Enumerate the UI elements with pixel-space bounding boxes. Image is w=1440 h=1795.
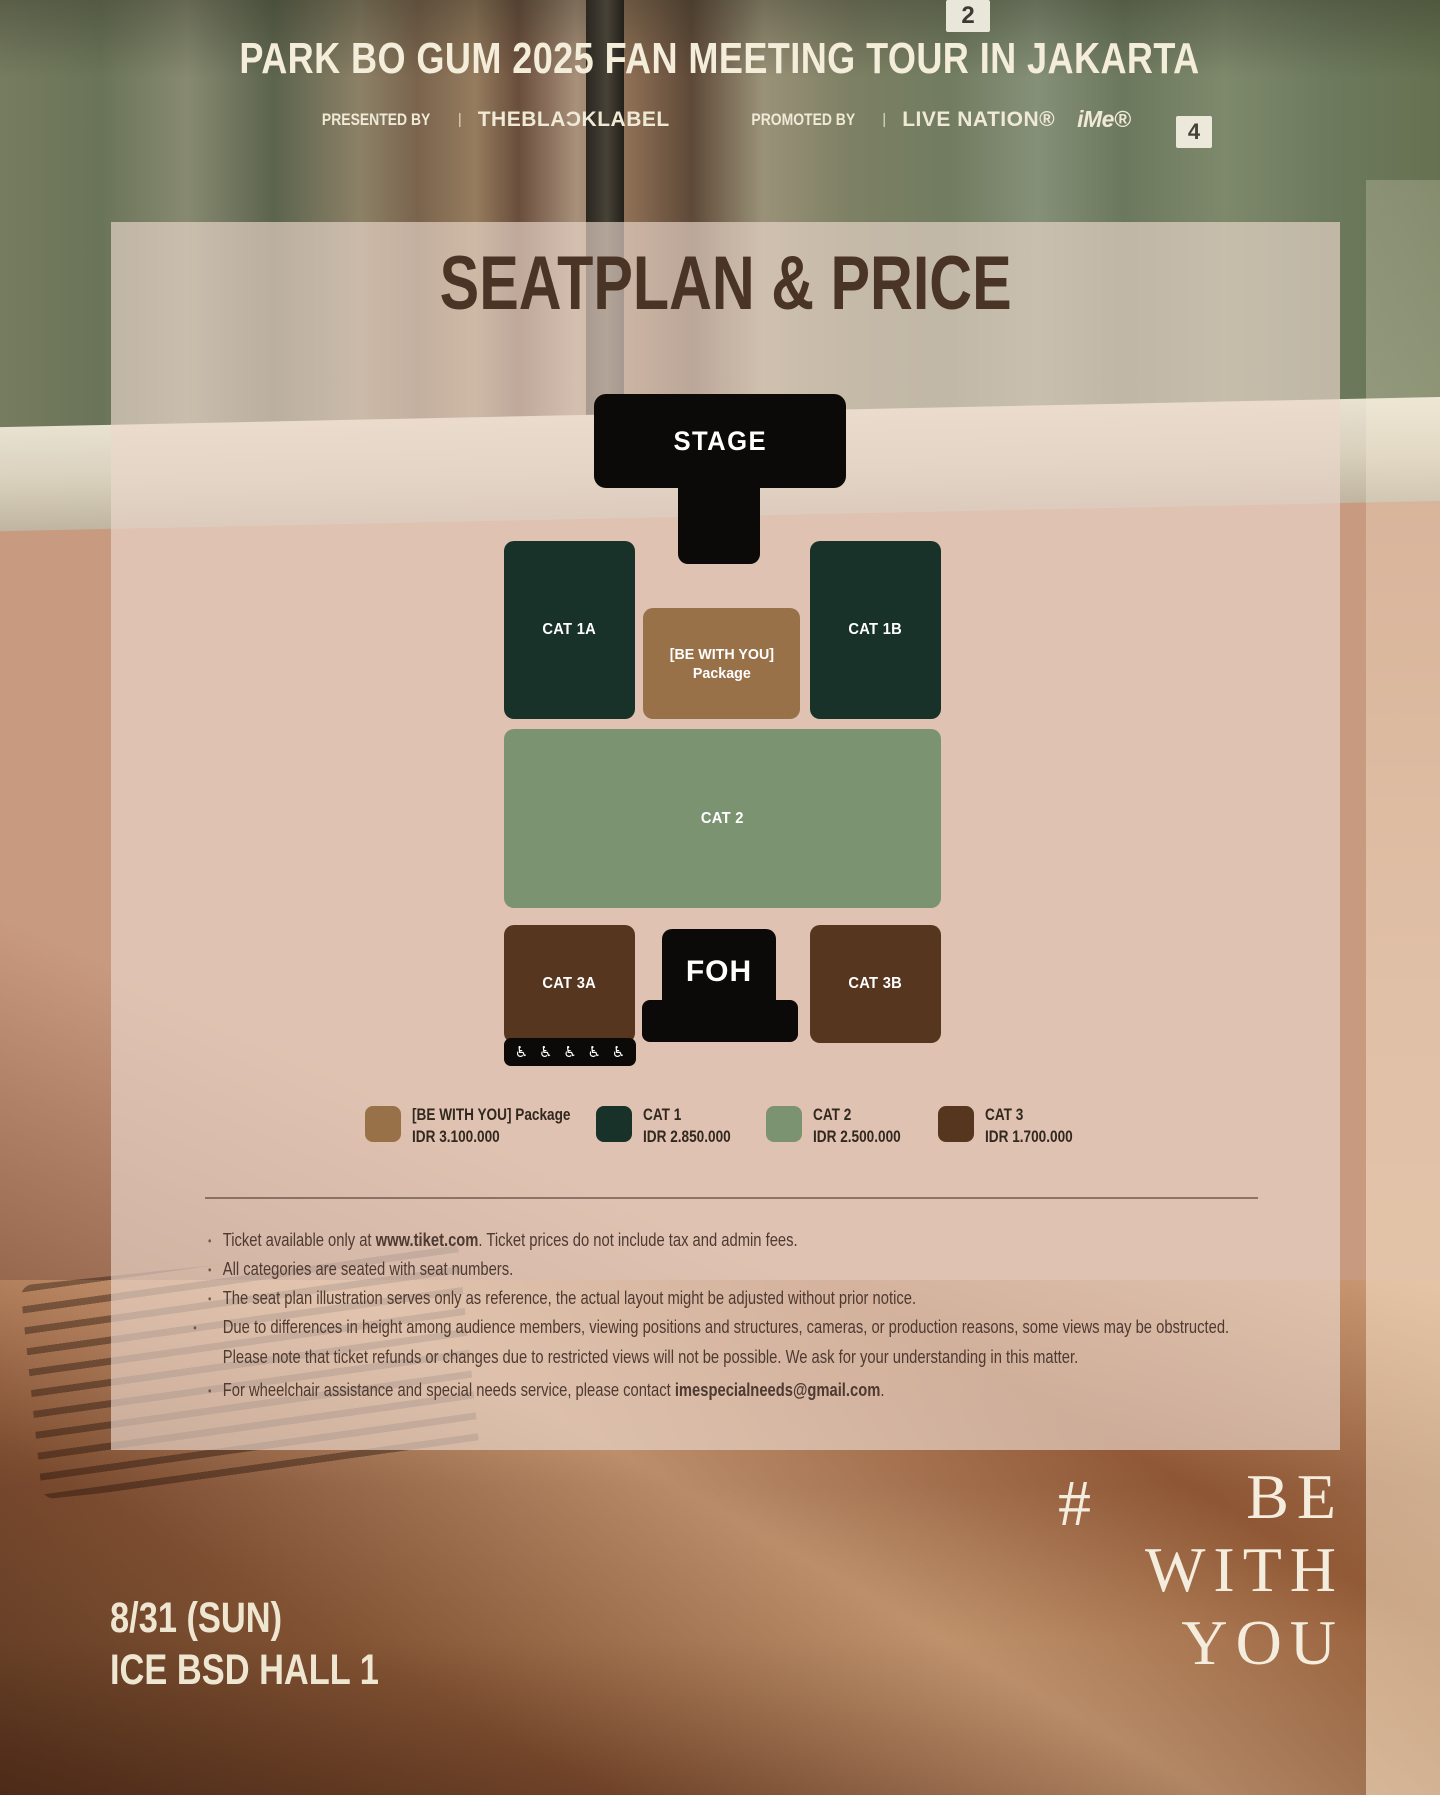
legend-swatch-cat3 — [938, 1106, 974, 1142]
section-cat1a: CAT 1A — [504, 541, 635, 719]
foh-label: FOH — [686, 955, 752, 989]
legend-price: IDR 3.100.000 — [412, 1126, 620, 1148]
wheelchair-icon: ♿ — [539, 1045, 552, 1060]
note-text: Due to differences in height among audie… — [223, 1317, 1229, 1367]
promoted-by-label: PROMOTED BY — [751, 110, 855, 130]
event-date: 8/31 (SUN) — [110, 1592, 446, 1644]
event-title-text: PARK BO GUM 2025 FAN MEETING TOUR IN JAK… — [240, 34, 1200, 84]
bullet-icon: • — [208, 1227, 223, 1256]
bullet-icon: • — [208, 1377, 223, 1406]
package-line2: Package — [693, 665, 751, 682]
foh-block: FOH — [662, 929, 776, 1035]
legend-name: [BE WITH YOU] Package — [412, 1104, 620, 1126]
event-title: PARK BO GUM 2025 FAN MEETING TOUR IN JAK… — [0, 34, 1440, 84]
note-bold-text: imespecialneeds@gmail.com — [675, 1380, 881, 1400]
note-reference: •The seat plan illustration serves only … — [208, 1284, 1244, 1314]
legend-swatch-cat1 — [596, 1106, 632, 1142]
note-text: Ticket available only at — [223, 1230, 376, 1250]
theblacklabel-logo: THEBLAƆKLABEL — [478, 108, 670, 132]
presented-by-label: PRESENTED BY — [321, 110, 429, 130]
photo-sign-2: 2 — [946, 0, 990, 32]
bullet-icon: • — [208, 1314, 223, 1343]
credits-row: PRESENTED BY | THEBLAƆKLABEL PROMOTED BY… — [0, 106, 1440, 133]
note-text: . Ticket prices do not include tax and a… — [478, 1230, 797, 1250]
panel-title: SEATPLAN & PRICE — [111, 240, 1340, 327]
package-line1: [BE WITH YOU] — [669, 646, 773, 663]
section-cat3b: CAT 3B — [810, 925, 941, 1043]
seatmap: STAGE CAT 1A [BE WITH YOU] Package CAT 1… — [504, 394, 941, 1066]
livenation-logo: LIVE NATION® — [902, 108, 1055, 132]
event-date-venue: 8/31 (SUN) ICE BSD HALL 1 — [110, 1592, 446, 1696]
sunlight-strip — [1366, 180, 1440, 1795]
section-cat1a-label: CAT 1A — [543, 621, 597, 639]
ime-logo: iMe® — [1077, 106, 1130, 133]
hashtag-line: BE — [1145, 1460, 1344, 1533]
section-cat3b-label: CAT 3B — [849, 975, 903, 993]
event-venue-text: ICE BSD HALL 1 — [110, 1644, 379, 1696]
bullet-icon: • — [208, 1256, 223, 1285]
section-cat2: CAT 2 — [504, 729, 941, 908]
legend-text-cat3: CAT 3 IDR 1.700.000 — [985, 1104, 1245, 1148]
stage-runway — [678, 484, 760, 564]
event-date-text: 8/31 (SUN) — [110, 1592, 282, 1644]
wheelchair-icon: ♿ — [587, 1045, 600, 1060]
section-package-label: [BE WITH YOU] Package — [669, 645, 773, 683]
section-cat3a-label: CAT 3A — [543, 975, 597, 993]
event-venue: ICE BSD HALL 1 — [110, 1644, 446, 1696]
stage-label: STAGE — [673, 426, 767, 457]
wheelchair-icon: ♿ — [563, 1045, 576, 1060]
panel-title-text: SEATPLAN & PRICE — [439, 240, 1011, 327]
legend-price: IDR 1.700.000 — [985, 1126, 1193, 1148]
section-cat3a: CAT 3A — [504, 925, 635, 1043]
section-cat1b-label: CAT 1B — [849, 621, 903, 639]
section-package: [BE WITH YOU] Package — [643, 608, 800, 719]
wheelchair-icon: ♿ — [515, 1045, 528, 1060]
credits-separator: | — [458, 111, 462, 128]
note-text: All categories are seated with seat numb… — [223, 1259, 513, 1279]
wheelchair-icon: ♿ — [612, 1045, 625, 1060]
note-obstructed: •Due to differences in height among audi… — [208, 1313, 1244, 1372]
notes-divider — [205, 1197, 1258, 1199]
note-text: . — [880, 1380, 884, 1400]
note-seated: •All categories are seated with seat num… — [208, 1255, 1244, 1285]
hashtag-icon: # — [1058, 1466, 1091, 1542]
legend-text-package: [BE WITH YOU] Package IDR 3.100.000 — [412, 1104, 672, 1148]
seatplan-panel: SEATPLAN & PRICE STAGE CAT 1A [BE WITH Y… — [111, 222, 1340, 1450]
hashtag-bewithyou: BE WITH YOU — [1145, 1460, 1336, 1679]
note-text: For wheelchair assistance and special ne… — [223, 1380, 675, 1400]
photo-sign-2-label: 2 — [961, 2, 974, 30]
legend-swatch-package — [365, 1106, 401, 1142]
note-tickets: •Ticket available only at www.tiket.com.… — [208, 1226, 1244, 1256]
section-cat1b: CAT 1B — [810, 541, 941, 719]
bullet-icon: • — [208, 1285, 223, 1314]
hashtag-line: YOU — [1145, 1606, 1344, 1679]
section-cat2-label: CAT 2 — [701, 810, 744, 828]
legend-name: CAT 3 — [985, 1104, 1193, 1126]
credits-separator-2: | — [882, 111, 886, 128]
hashtag-line: WITH — [1145, 1533, 1344, 1606]
stage-block: STAGE — [594, 394, 846, 488]
note-bold-text: www.tiket.com — [376, 1230, 479, 1250]
note-wheelchair: •For wheelchair assistance and special n… — [208, 1376, 1244, 1406]
note-text: The seat plan illustration serves only a… — [223, 1288, 916, 1308]
wheelchair-area: ♿ ♿ ♿ ♿ ♿ — [504, 1038, 636, 1066]
legend-swatch-cat2 — [766, 1106, 802, 1142]
